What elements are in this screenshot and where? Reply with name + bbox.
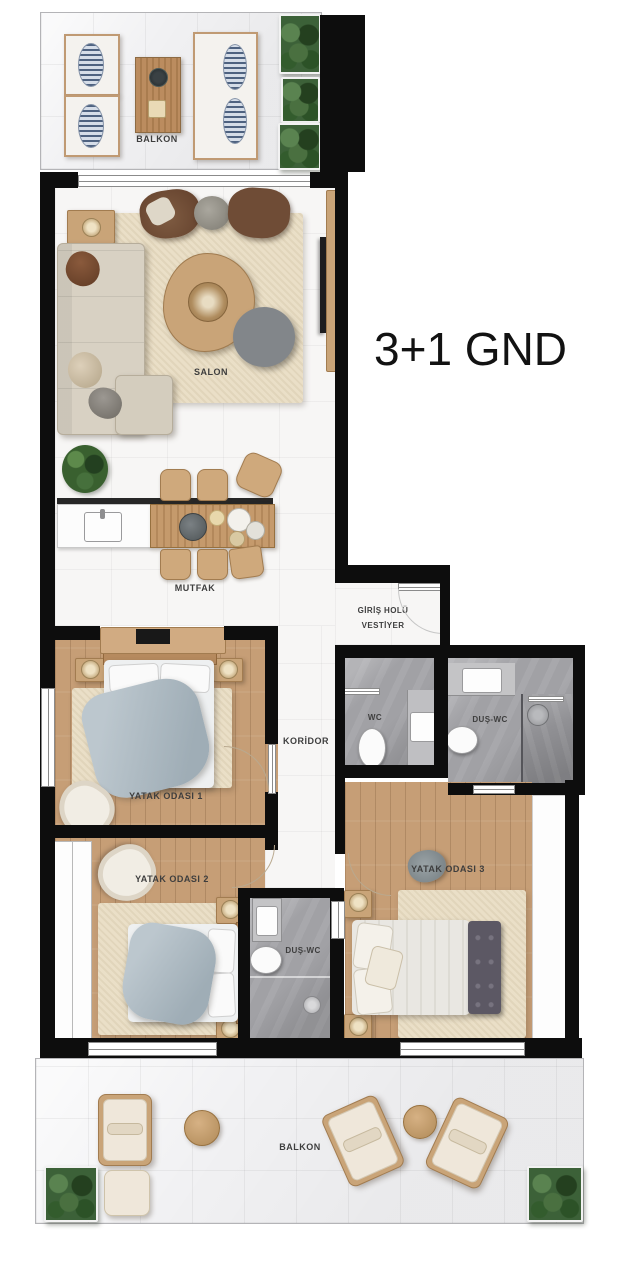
planter (279, 14, 321, 74)
wc-sink (410, 712, 436, 742)
room-label-balkon-bottom: BALKON (250, 1140, 350, 1155)
wall-bedroom1-2-divider (40, 825, 278, 838)
duswc2-drain (303, 996, 321, 1014)
faucet (100, 509, 105, 519)
structural-column (320, 15, 365, 172)
room-label-yatak3: YATAK ODASI 3 (373, 862, 523, 877)
balcony-armchair (64, 95, 120, 157)
room-label-yatak1: YATAK ODASI 1 (91, 789, 241, 804)
wall-vestibule-top (335, 565, 450, 583)
bed3-bench (468, 921, 501, 1014)
room-label-koridor: KORİDOR (266, 734, 346, 749)
balcony-round-table (403, 1105, 437, 1139)
pouf (194, 196, 230, 230)
bedroom2-wardrobe (53, 841, 92, 1040)
kitchen-sink (84, 512, 122, 542)
bedroom2-window[interactable] (88, 1042, 217, 1056)
stone-side-table (233, 307, 295, 367)
wall-bedroom1-top-left (55, 626, 100, 640)
wall-bedroom1-right-upper (265, 640, 278, 744)
dining-chair (160, 469, 191, 501)
dining-chair (197, 549, 228, 580)
balcony-armchair (64, 34, 120, 96)
bowl (149, 68, 168, 87)
bedroom1-tv (136, 629, 170, 644)
room-label-duswc1: DUŞ-WC (445, 712, 535, 727)
plan-title: 3+1 GND (374, 322, 567, 376)
room-label-mutfak: MUTFAK (145, 581, 245, 596)
candle (82, 218, 101, 237)
salon-balcony-slider[interactable] (78, 175, 312, 187)
tray (148, 100, 166, 118)
duswc2-door[interactable] (331, 901, 345, 939)
plate (246, 521, 265, 540)
side-table (67, 210, 115, 244)
bedroom1-window[interactable] (41, 688, 55, 787)
bedroom1-door-leaf[interactable] (268, 744, 276, 794)
wall-corridor-right (335, 658, 345, 854)
kitchen-plant (62, 445, 108, 493)
room-label-salon: SALON (161, 365, 261, 380)
duswc1-toilet (446, 726, 478, 754)
planter (527, 1166, 583, 1222)
planter (278, 123, 321, 170)
wall-bath-band (335, 645, 585, 658)
wall-bedroom1-right-lower (265, 792, 278, 825)
armchair-pillow (143, 195, 177, 228)
striped-pillow (78, 43, 104, 87)
bedroom3-window[interactable] (400, 1042, 525, 1056)
dining-chair (160, 549, 191, 580)
dining-table (150, 504, 275, 548)
duswc1-sink (462, 668, 502, 693)
planter (44, 1166, 98, 1222)
wall-right-outer-top (573, 645, 585, 795)
striped-pillow (78, 104, 104, 148)
striped-pillow (223, 44, 247, 90)
lamp (81, 660, 100, 679)
duswc2-sink (256, 906, 278, 936)
shower-bar (528, 696, 564, 702)
duswc2-shower-line (250, 976, 330, 978)
wc-toilet (358, 728, 386, 768)
wall-duswc2-left (238, 888, 250, 1038)
duswc1-door[interactable] (473, 785, 515, 794)
planter (281, 77, 320, 123)
balcony-ottoman (104, 1170, 150, 1216)
wall-vestibule-right (440, 583, 450, 645)
bedroom3-closet (532, 795, 567, 1044)
serving-bowl (179, 513, 207, 541)
table-decor-ring (188, 282, 228, 322)
wall-wc-divider (434, 658, 448, 768)
balcony-side-table (184, 1110, 220, 1146)
dining-chair (228, 545, 265, 580)
room-label-wc: WC (345, 710, 405, 725)
wall-right-outer-bottom (565, 780, 579, 1058)
striped-pillow (223, 98, 247, 144)
l-sofa-chaise (115, 375, 173, 435)
lamp (349, 1017, 368, 1036)
backrest (107, 1123, 143, 1135)
tv (320, 237, 326, 333)
balcony-armchair (98, 1094, 152, 1166)
room-label-balkon-top: BALKON (107, 132, 207, 147)
wc-sliding-door[interactable] (344, 688, 380, 695)
wall-wc-bottom (335, 765, 448, 778)
plate (229, 531, 245, 547)
balcony-coffee-table (135, 57, 181, 133)
wall-bedroom1-top-right (224, 626, 278, 640)
wall-left-outer (40, 186, 55, 1058)
wall-duswc1-bottom (448, 783, 585, 795)
wall-salon-right (335, 186, 348, 566)
dining-chair (197, 469, 228, 501)
lamp (349, 893, 368, 912)
plate (209, 510, 225, 526)
wall-duswc2-top (238, 888, 342, 898)
floor-plan: BALKON SALON MUTFAK GİRİŞ H (0, 0, 620, 1280)
room-label-yatak2: YATAK ODASI 2 (97, 872, 247, 887)
lamp (219, 660, 238, 679)
